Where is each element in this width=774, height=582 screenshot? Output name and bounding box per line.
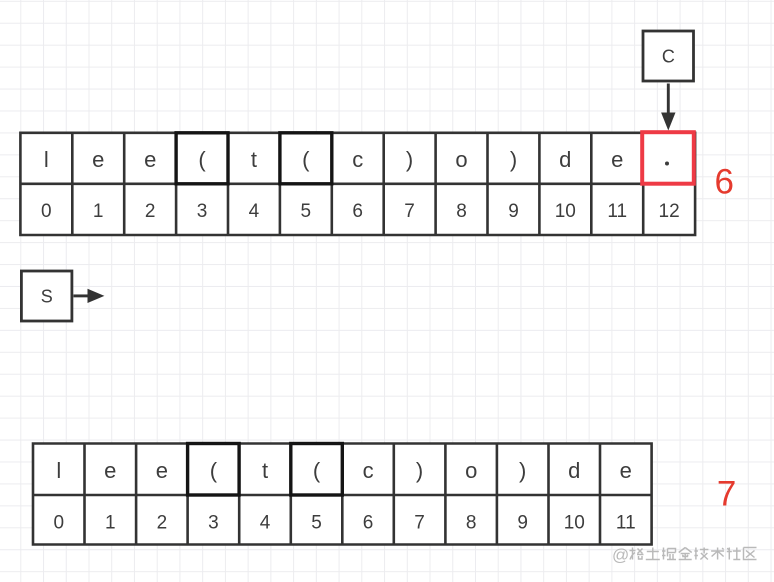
- svg-text:8: 8: [456, 201, 467, 222]
- svg-text:0: 0: [41, 201, 52, 222]
- svg-text:3: 3: [208, 513, 219, 534]
- svg-text:(: (: [198, 147, 206, 172]
- svg-text:3: 3: [197, 201, 208, 222]
- svg-text:7: 7: [414, 513, 425, 534]
- svg-text:C: C: [662, 47, 675, 67]
- svg-text:e: e: [156, 458, 168, 483]
- svg-text:9: 9: [508, 201, 519, 222]
- svg-text:4: 4: [249, 201, 260, 222]
- svg-text:7: 7: [717, 475, 736, 514]
- svg-text:e: e: [620, 458, 632, 483]
- svg-text:10: 10: [564, 513, 585, 534]
- svg-text:): ): [406, 147, 413, 172]
- svg-text:5: 5: [301, 201, 312, 222]
- svg-text:): ): [510, 147, 517, 172]
- svg-text:(: (: [302, 147, 310, 172]
- svg-text:t: t: [262, 458, 268, 483]
- svg-text:e: e: [611, 147, 623, 172]
- svg-text:l: l: [44, 147, 49, 172]
- svg-text:o: o: [465, 458, 477, 483]
- svg-text:c: c: [352, 147, 363, 172]
- svg-text:6: 6: [714, 162, 733, 201]
- svg-text:l: l: [56, 458, 61, 483]
- svg-text:6: 6: [352, 201, 363, 222]
- svg-text:1: 1: [105, 513, 116, 534]
- svg-text:d: d: [559, 147, 571, 172]
- svg-text:o: o: [455, 147, 467, 172]
- svg-text:8: 8: [466, 513, 477, 534]
- svg-text:e: e: [92, 147, 104, 172]
- svg-text:@: @: [612, 546, 629, 565]
- svg-text:e: e: [144, 147, 156, 172]
- svg-text:(: (: [210, 458, 218, 483]
- svg-text:7: 7: [404, 201, 415, 222]
- svg-text:5: 5: [311, 513, 322, 534]
- svg-text:11: 11: [616, 513, 636, 534]
- svg-text:d: d: [568, 458, 580, 483]
- svg-text:4: 4: [260, 513, 271, 534]
- svg-text:c: c: [363, 458, 374, 483]
- svg-text:0: 0: [54, 513, 65, 534]
- svg-text:e: e: [104, 458, 116, 483]
- svg-text:t: t: [251, 147, 257, 172]
- svg-text:6: 6: [363, 513, 374, 534]
- svg-text:2: 2: [145, 201, 156, 222]
- svg-text:(: (: [313, 458, 321, 483]
- svg-text:1: 1: [93, 201, 104, 222]
- svg-text:S: S: [41, 287, 53, 307]
- svg-text:): ): [416, 458, 423, 483]
- svg-text:2: 2: [157, 513, 168, 534]
- svg-text:): ): [519, 458, 526, 483]
- svg-text:10: 10: [555, 201, 576, 222]
- svg-text:11: 11: [607, 201, 627, 222]
- svg-text:9: 9: [517, 513, 528, 534]
- svg-text:12: 12: [659, 201, 680, 222]
